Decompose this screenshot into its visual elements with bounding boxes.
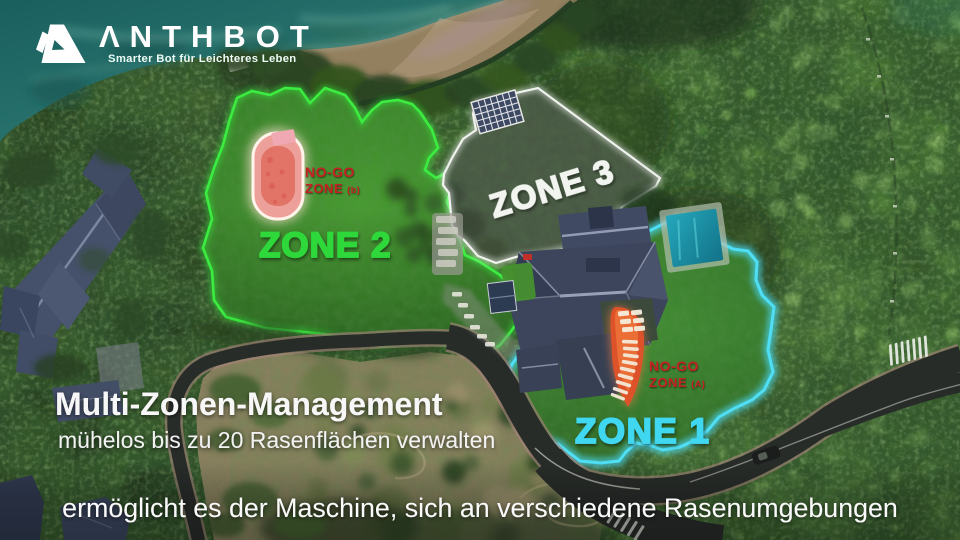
svg-text:NO-GO: NO-GO (649, 358, 699, 374)
svg-text:NO-GO: NO-GO (305, 164, 355, 180)
svg-text:Multi-Zonen-Management: Multi-Zonen-Management (55, 386, 443, 422)
svg-text:ZONE 1: ZONE 1 (575, 412, 710, 451)
svg-text:mühelos bis zu 20 Rasenflächen: mühelos bis zu 20 Rasenflächen verwalten (58, 427, 495, 453)
svg-text:ermöglicht es der Maschine, si: ermöglicht es der Maschine, sich an vers… (62, 493, 898, 523)
svg-text:ΛNTHBOT: ΛNTHBOT (99, 19, 319, 54)
svg-text:Smarter Bot für Leichteres Leb: Smarter Bot für Leichteres Leben (108, 53, 297, 65)
svg-text:ZONE 2: ZONE 2 (259, 226, 391, 265)
